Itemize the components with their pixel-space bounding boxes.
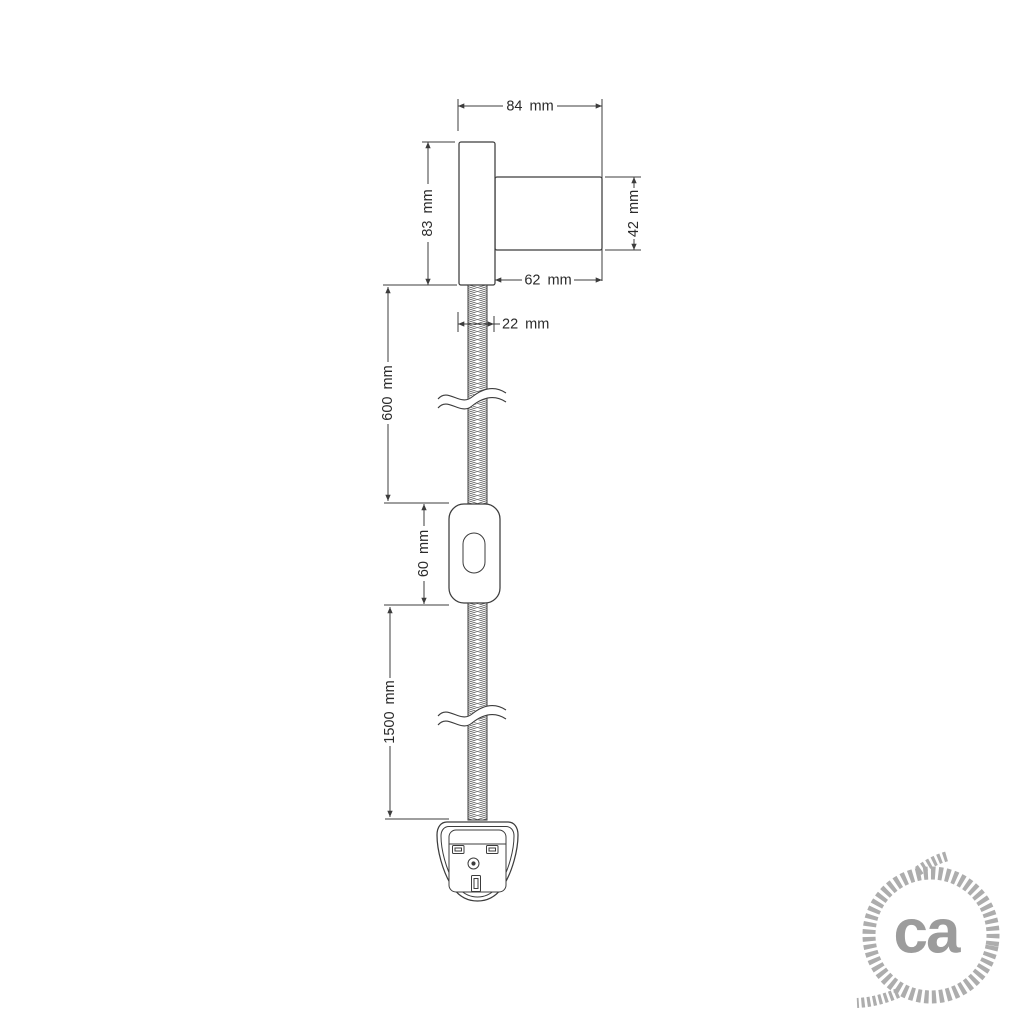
- lamp-drawing: [437, 142, 602, 901]
- lamp-holder-cylinder: [495, 177, 602, 250]
- screw-center: [471, 861, 475, 865]
- uk-plug: [437, 822, 518, 901]
- dimension-62mm: 62 mm: [495, 272, 602, 289]
- plug-pin-slot-right: [487, 846, 499, 854]
- slot-outer: [453, 846, 465, 854]
- product-dimension-diagram: 84 mm 83 mm 42 mm 62 mm: [0, 0, 1024, 1024]
- dimension-42mm: 42 mm: [605, 177, 642, 250]
- dimension-label-overall-width: 84 mm: [506, 99, 553, 115]
- logo-rope-tail-bottom-icon: [857, 993, 898, 1003]
- switch-rocker: [463, 533, 485, 573]
- plug-screw: [468, 858, 479, 869]
- diagram-canvas: 84 mm 83 mm 42 mm 62 mm: [0, 0, 1024, 1024]
- plug-earth-slot: [472, 876, 481, 892]
- dimension-83mm: 83 mm: [383, 142, 457, 285]
- slot-outer: [487, 846, 499, 854]
- dimension-60mm: 60 mm: [384, 504, 449, 605]
- wall-plate: [459, 142, 495, 285]
- slot-outer: [472, 876, 481, 892]
- dimension-label-lower-cable: 1500 mm: [382, 680, 398, 743]
- dimension-600mm: 600 mm: [380, 287, 449, 503]
- dimension-label-base-width: 22 mm: [502, 317, 549, 333]
- plug-pin-slot-left: [453, 846, 465, 854]
- dimension-label-upper-cable: 600 mm: [380, 365, 396, 420]
- dimension-label-switch-height: 60 mm: [416, 530, 432, 577]
- dimension-label-base-height: 83 mm: [420, 189, 436, 236]
- dimension-label-holder-length: 62 mm: [524, 273, 571, 289]
- brand-logo: ca: [857, 856, 1003, 1007]
- logo-text: ca: [894, 898, 961, 967]
- dimension-1500mm: 1500 mm: [382, 607, 449, 819]
- dimension-label-holder-diameter: 42 mm: [626, 190, 642, 237]
